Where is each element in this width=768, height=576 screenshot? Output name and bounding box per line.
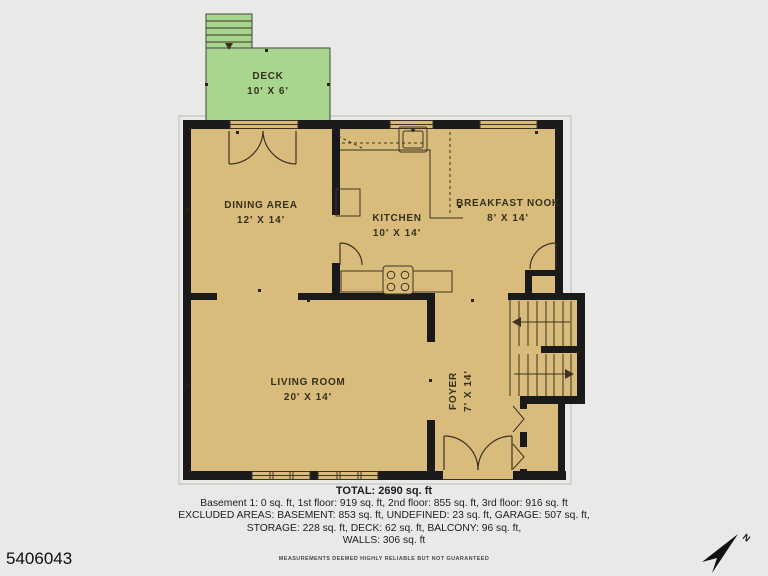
summary-total: TOTAL: 2690 sq. ft — [0, 485, 768, 497]
disclaimer-text: MEASUREMENTS DEEMED HIGHLY RELIABLE BUT … — [0, 556, 768, 562]
room-name: FOYER — [446, 370, 461, 412]
room-dims: 8' X 14' — [456, 211, 560, 226]
summary-excluded-2: STORAGE: 228 sq. ft, DECK: 62 sq. ft, BA… — [0, 523, 768, 535]
room-dims: 7' X 14' — [461, 370, 476, 412]
wall-bottom — [183, 471, 443, 480]
room-name: BREAKFAST NOOK — [456, 196, 560, 211]
wall-closet-left-c — [520, 469, 527, 480]
room-name: DECK — [247, 69, 289, 84]
room-label-breakfast-nook: BREAKFAST NOOK 8' X 14' — [456, 196, 560, 226]
floor-plan-image: DECK 10' X 6' DINING AREA 12' X 14' KITC… — [0, 0, 768, 576]
wall-closet-right — [558, 403, 565, 480]
compass: N — [692, 526, 754, 574]
summary-floors: Basement 1: 0 sq. ft, 1st floor: 919 sq.… — [0, 498, 768, 510]
wall-closet-left-a — [520, 403, 527, 409]
summary-walls: WALLS: 306 sq. ft — [0, 535, 768, 547]
room-label-kitchen: KITCHEN 10' X 14' — [372, 211, 421, 241]
wall-living-foyer-lower — [427, 420, 435, 471]
wall-landing-v — [525, 270, 532, 294]
area-summary: TOTAL: 2690 sq. ft Basement 1: 0 sq. ft,… — [0, 485, 768, 547]
room-dims: 10' X 6' — [247, 84, 289, 99]
room-name: DINING AREA — [224, 198, 297, 213]
window-breakfast-nook — [480, 121, 537, 129]
deck-area — [206, 14, 330, 121]
wall-stair-separator — [541, 346, 583, 353]
window-living-left — [252, 472, 310, 480]
listing-id: 5406043 — [6, 549, 72, 569]
wall-mid-center — [298, 293, 435, 300]
window-living-right — [318, 472, 378, 480]
room-dims: 10' X 14' — [372, 226, 421, 241]
wall-mid-left — [183, 293, 217, 300]
room-name: KITCHEN — [372, 211, 421, 226]
room-dims: 20' X 14' — [271, 390, 346, 405]
wall-living-foyer-upper — [427, 300, 435, 342]
summary-excluded-1: EXCLUDED AREAS: BASEMENT: 853 sq. ft, UN… — [0, 510, 768, 522]
front-door-threshold — [443, 471, 513, 480]
north-arrow-icon — [702, 534, 738, 573]
room-label-living-room: LIVING ROOM 20' X 14' — [271, 375, 346, 405]
sliding-door-deck — [230, 121, 298, 129]
room-dims: 12' X 14' — [224, 213, 297, 228]
wall-closet-top — [520, 396, 585, 404]
compass-north-label: N — [741, 532, 752, 544]
wall-closet-left-b — [520, 432, 527, 447]
wall-mid-right — [508, 293, 585, 300]
room-label-foyer: FOYER 7' X 14' — [446, 370, 476, 412]
room-name: LIVING ROOM — [271, 375, 346, 390]
room-label-deck: DECK 10' X 6' — [247, 69, 289, 99]
stove — [383, 266, 413, 294]
wall-dining-kitchen-stub — [332, 263, 340, 293]
room-label-dining-area: DINING AREA 12' X 14' — [224, 198, 297, 228]
